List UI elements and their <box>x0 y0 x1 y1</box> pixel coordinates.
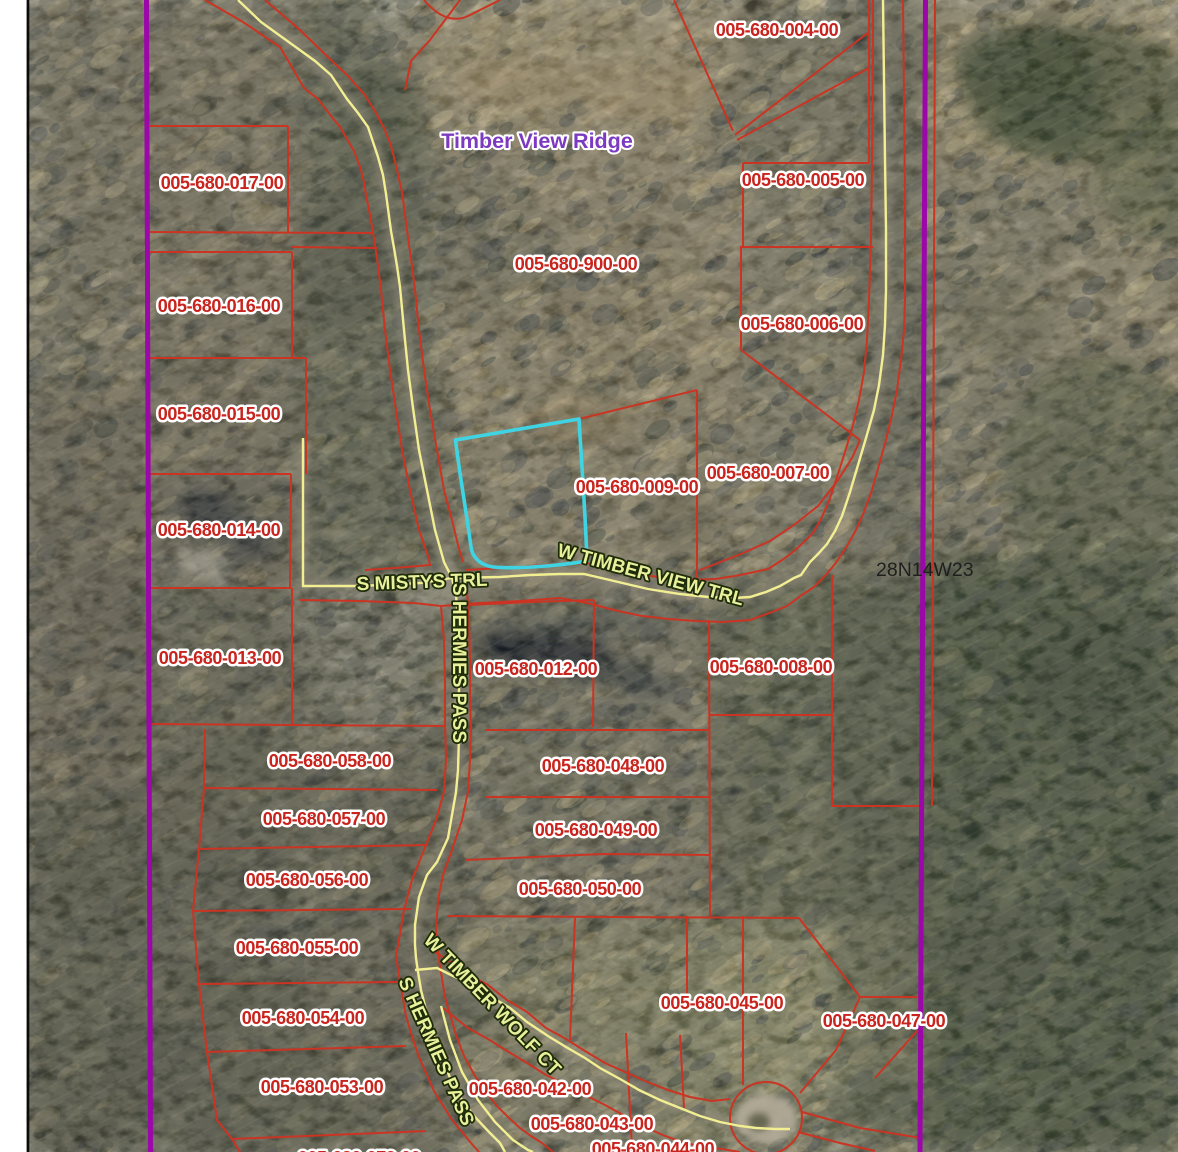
svg-text:005-680-056-00: 005-680-056-00 <box>246 870 369 890</box>
svg-text:005-680-073-00: 005-680-073-00 <box>298 1148 421 1152</box>
svg-text:005-680-050-00: 005-680-050-00 <box>519 879 642 899</box>
svg-text:005-680-014-00: 005-680-014-00 <box>158 520 281 540</box>
svg-text:005-680-048-00: 005-680-048-00 <box>542 756 665 776</box>
svg-text:005-680-008-00: 005-680-008-00 <box>710 657 833 677</box>
svg-text:S HERMIES PASS: S HERMIES PASS <box>448 583 469 743</box>
svg-text:005-680-042-00: 005-680-042-00 <box>469 1079 592 1099</box>
svg-text:28N14W23: 28N14W23 <box>876 559 974 581</box>
svg-text:005-680-900-00: 005-680-900-00 <box>515 254 638 274</box>
svg-text:005-680-006-00: 005-680-006-00 <box>741 314 864 334</box>
svg-text:005-680-044-00: 005-680-044-00 <box>592 1139 715 1152</box>
svg-text:005-680-005-00: 005-680-005-00 <box>742 170 865 190</box>
svg-text:005-680-057-00: 005-680-057-00 <box>263 809 386 829</box>
svg-text:005-680-007-00: 005-680-007-00 <box>707 463 830 483</box>
svg-text:005-680-016-00: 005-680-016-00 <box>158 296 281 316</box>
svg-text:005-680-004-00: 005-680-004-00 <box>716 20 839 40</box>
svg-text:005-680-049-00: 005-680-049-00 <box>535 820 658 840</box>
svg-text:005-680-009-00: 005-680-009-00 <box>576 477 699 497</box>
svg-text:005-680-013-00: 005-680-013-00 <box>159 648 282 668</box>
svg-text:005-680-053-00: 005-680-053-00 <box>261 1077 384 1097</box>
svg-text:005-680-058-00: 005-680-058-00 <box>269 751 392 771</box>
svg-text:005-680-045-00: 005-680-045-00 <box>661 993 784 1013</box>
svg-text:005-680-054-00: 005-680-054-00 <box>242 1008 365 1028</box>
svg-text:005-680-055-00: 005-680-055-00 <box>236 938 359 958</box>
svg-text:Timber View Ridge: Timber View Ridge <box>441 129 633 153</box>
svg-text:005-680-047-00: 005-680-047-00 <box>823 1011 946 1031</box>
svg-text:005-680-043-00: 005-680-043-00 <box>531 1114 654 1134</box>
svg-text:005-680-017-00: 005-680-017-00 <box>161 173 284 193</box>
svg-text:005-680-012-00: 005-680-012-00 <box>475 659 598 679</box>
svg-text:005-680-015-00: 005-680-015-00 <box>158 404 281 424</box>
